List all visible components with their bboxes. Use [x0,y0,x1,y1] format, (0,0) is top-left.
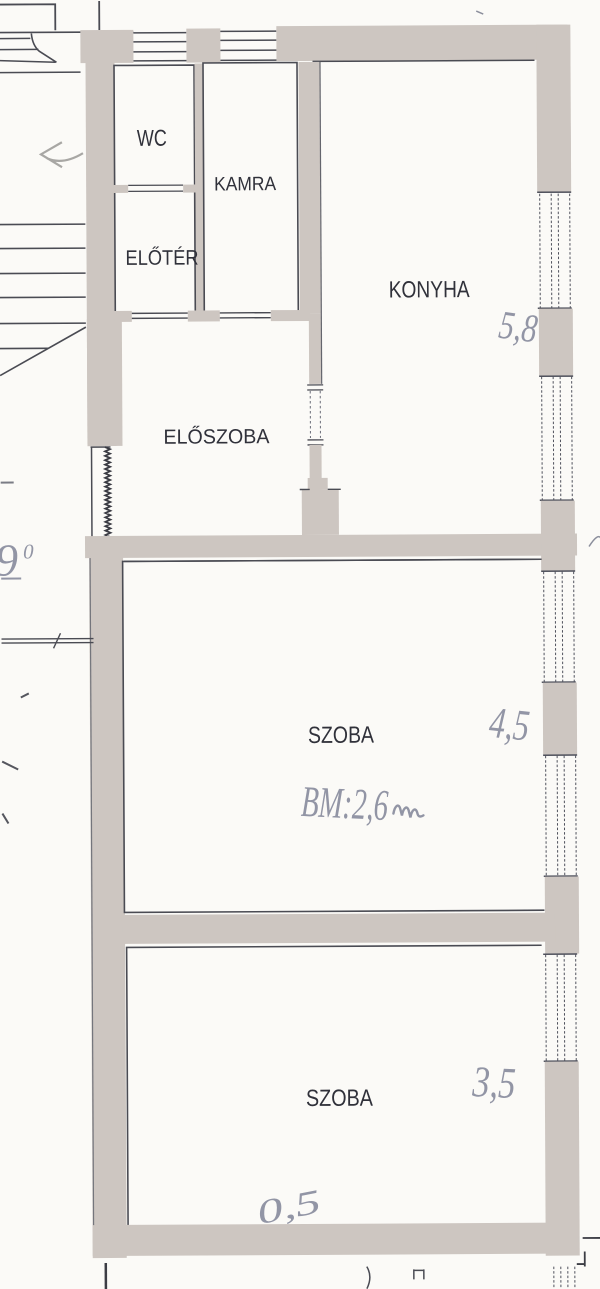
svg-text:BM:2,6: BM:2,6 [300,777,389,830]
svg-text:SZOBA: SZOBA [306,1085,373,1111]
svg-text:0: 0 [23,539,34,563]
svg-text:4,5: 4,5 [487,698,532,751]
svg-text:3,5: 3,5 [471,1057,517,1108]
svg-text:ELŐSZOBA: ELŐSZOBA [163,425,269,449]
svg-text:WC: WC [137,125,167,151]
svg-text:KONYHA: KONYHA [389,276,470,302]
svg-text:5,8: 5,8 [496,302,540,352]
svg-text:SZOBA: SZOBA [308,722,374,748]
svg-text:KAMRA: KAMRA [214,173,276,195]
svg-text:ELŐTÉR: ELŐTÉR [125,247,198,270]
